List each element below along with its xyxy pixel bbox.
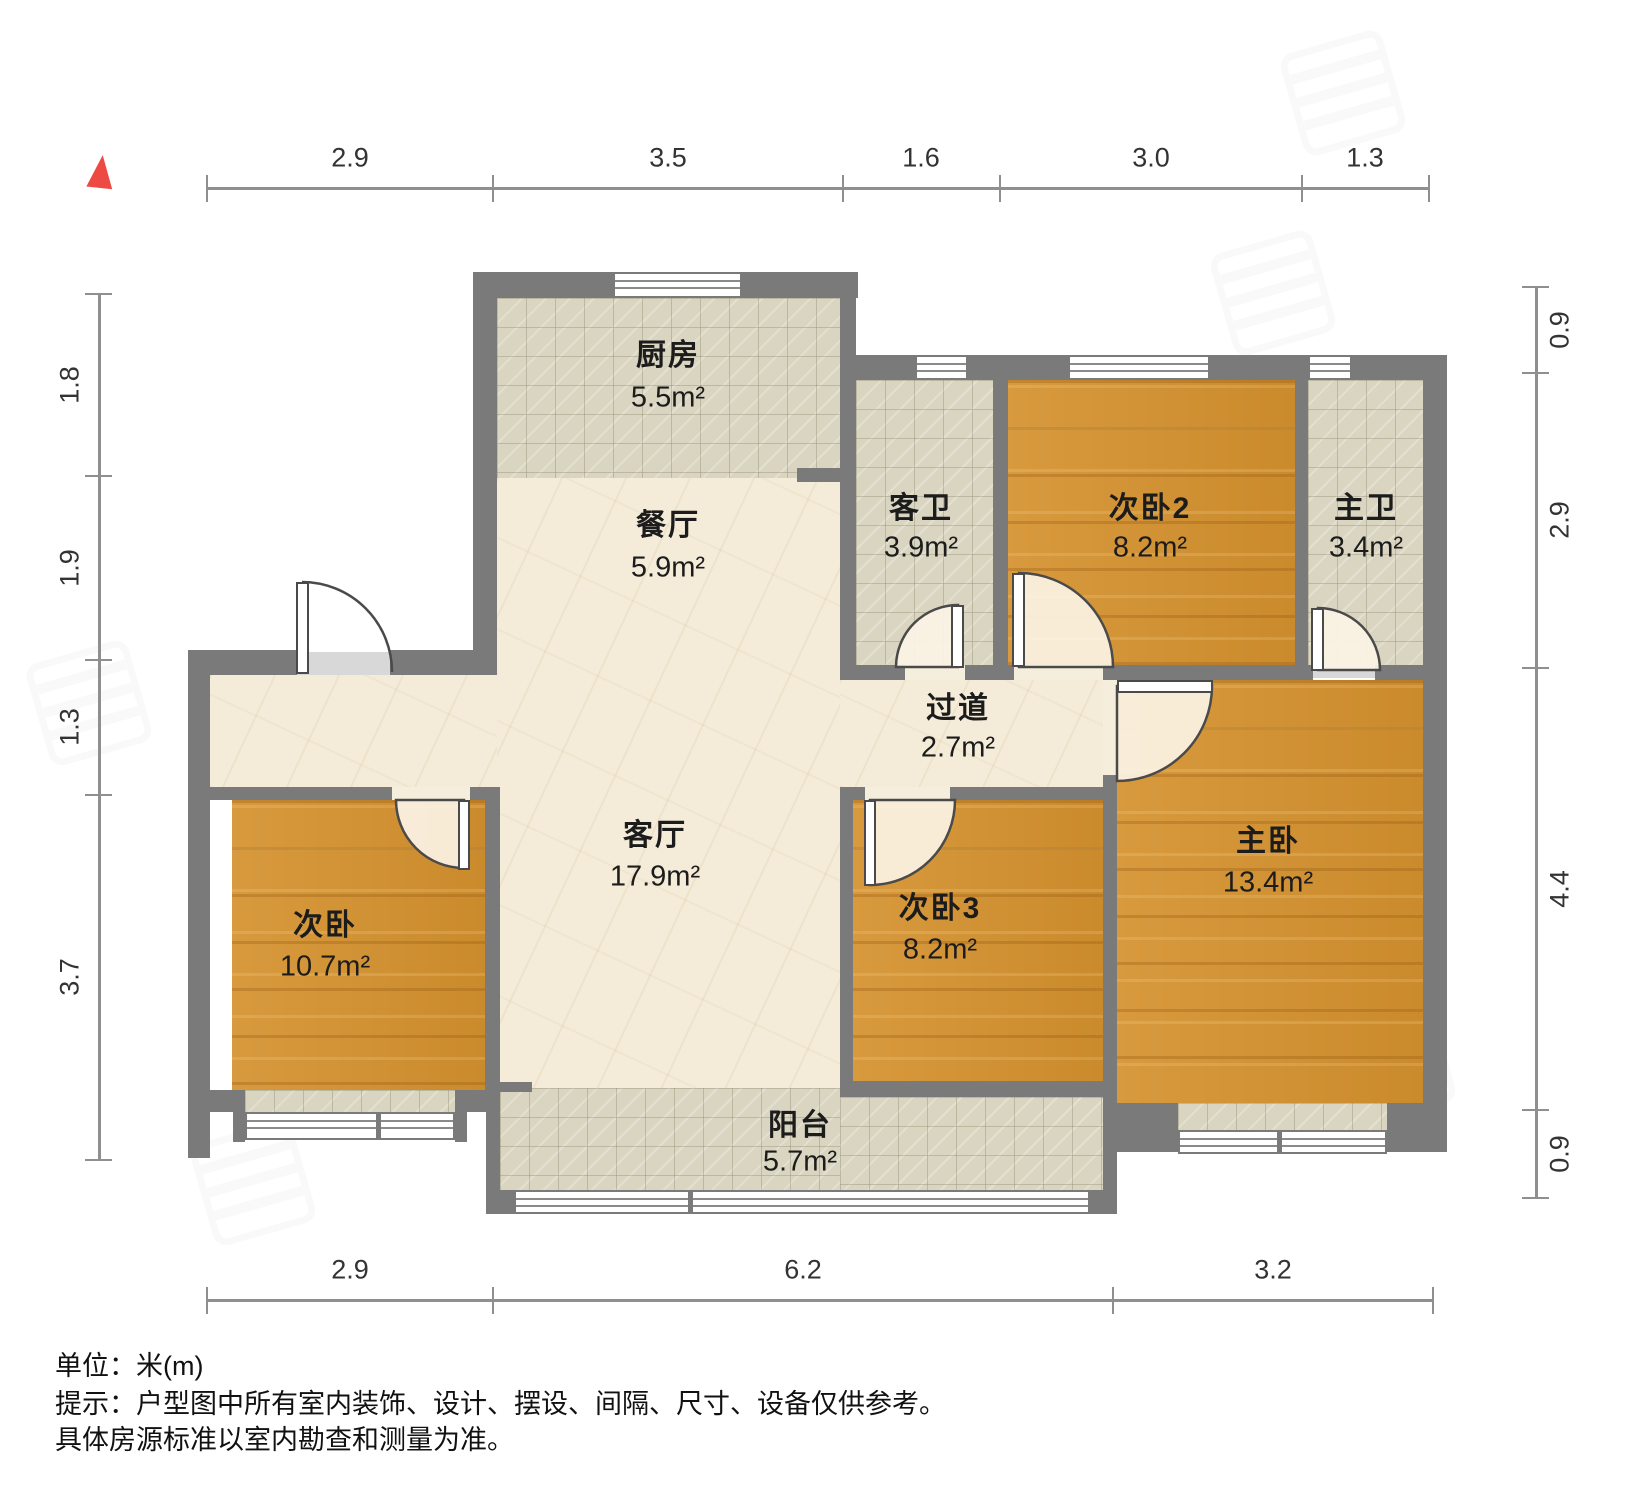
dim-line-bottom — [207, 1299, 1433, 1302]
dim-left-4: 3.7 — [55, 958, 86, 996]
guest-bath-area: 3.9m² — [884, 532, 958, 565]
window-divider — [1277, 1130, 1282, 1154]
bedroom3-area: 8.2m² — [903, 934, 977, 967]
master-bedroom-area: 13.4m² — [1223, 867, 1313, 900]
guest-bath-label: 客卫 — [889, 483, 953, 527]
dim-tick — [1522, 372, 1549, 374]
master-bath-door-arc — [1318, 608, 1380, 670]
dining-area: 5.9m² — [631, 552, 705, 585]
bedroom-bay-window — [245, 1112, 455, 1140]
floor-plan-canvas: 厨房 5.5m² 餐厅 5.9m² 客卫 3.9m² 次卧2 8.2m² 主卫 … — [0, 0, 1636, 1488]
master-bath-window — [1308, 355, 1352, 380]
living-label: 客厅 — [623, 810, 687, 854]
dim-tick — [1301, 175, 1303, 202]
balcony-window — [514, 1190, 1090, 1214]
entry-door-arc — [302, 582, 392, 672]
bedroom2-door-arc — [1019, 573, 1113, 667]
bedroom-door-leaf — [458, 800, 470, 870]
guest-bath-window — [915, 355, 968, 380]
dim-top-5: 1.3 — [1346, 143, 1384, 174]
dim-line-right — [1535, 287, 1538, 1198]
dim-tick — [842, 175, 844, 202]
dim-tick — [206, 175, 208, 202]
bedroom3-door-arc — [870, 800, 955, 885]
dim-tick — [1428, 175, 1430, 202]
balcony-area: 5.7m² — [763, 1146, 837, 1179]
dim-tick — [492, 1287, 494, 1314]
dim-top-3: 1.6 — [902, 143, 940, 174]
bedroom-door-arc — [396, 800, 464, 868]
dim-line-top — [207, 187, 1429, 190]
bedroom-label: 次卧 — [293, 900, 357, 944]
dim-left-3: 1.3 — [55, 708, 86, 746]
hallway-area: 2.7m² — [921, 732, 995, 765]
kitchen-label: 厨房 — [636, 330, 700, 374]
dim-tick — [1522, 667, 1549, 669]
dim-line-left — [98, 294, 101, 1160]
dim-left-1: 1.8 — [55, 366, 86, 404]
master-bay-window — [1178, 1130, 1387, 1154]
hallway-label: 过道 — [926, 683, 990, 727]
dim-tick — [1432, 1287, 1434, 1314]
dim-bottom-1: 2.9 — [331, 1255, 369, 1286]
bedroom2-door-leaf — [1012, 573, 1025, 667]
bedroom-area: 10.7m² — [280, 951, 370, 984]
dim-right-4: 0.9 — [1545, 1135, 1576, 1173]
dim-right-2: 2.9 — [1545, 501, 1576, 539]
dim-right-3: 4.4 — [1545, 870, 1576, 908]
dim-tick — [85, 293, 112, 295]
guest-bath-door-leaf — [951, 605, 964, 668]
dim-tick — [85, 475, 112, 477]
footer-notice-line1: 提示：户型图中所有室内装饰、设计、摆设、间隔、尺寸、设备仅供参考。 — [55, 1382, 946, 1421]
dim-tick — [85, 794, 112, 796]
bedroom2-area: 8.2m² — [1113, 532, 1187, 565]
master-bath-area: 3.4m² — [1329, 532, 1403, 565]
dim-tick — [85, 1159, 112, 1161]
dim-tick — [1522, 1109, 1549, 1111]
master-bath-door-leaf — [1311, 608, 1324, 671]
master-bedroom-door-arc — [1117, 686, 1212, 781]
bedroom3-door-leaf — [864, 800, 876, 886]
master-bedroom-label: 主卧 — [1236, 816, 1300, 860]
bedroom2-label: 次卧2 — [1109, 483, 1192, 527]
dim-right-1: 0.9 — [1545, 311, 1576, 349]
window-divider — [376, 1112, 381, 1140]
master-bath-label: 主卫 — [1334, 483, 1398, 527]
dim-tick — [85, 659, 112, 661]
window-divider — [688, 1190, 693, 1214]
dim-bottom-2: 6.2 — [784, 1255, 822, 1286]
guest-bath-door-arc — [896, 605, 958, 667]
bedroom3-label: 次卧3 — [899, 883, 982, 927]
dim-tick — [999, 175, 1001, 202]
master-bedroom-door-leaf — [1117, 680, 1213, 693]
dim-tick — [1112, 1287, 1114, 1314]
living-area: 17.9m² — [610, 861, 700, 894]
footer-notice-line2: 具体房源标准以室内勘查和测量为准。 — [55, 1418, 514, 1457]
dining-label: 餐厅 — [636, 500, 700, 544]
dim-tick — [206, 1287, 208, 1314]
dim-left-2: 1.9 — [55, 549, 86, 587]
footer-unit-note: 单位：米(m) — [55, 1344, 203, 1383]
dim-top-2: 3.5 — [649, 143, 687, 174]
dim-top-1: 2.9 — [331, 143, 369, 174]
kitchen-window — [613, 272, 742, 298]
dim-tick — [1522, 286, 1549, 288]
kitchen-area: 5.5m² — [631, 382, 705, 415]
dim-tick — [492, 175, 494, 202]
dim-top-4: 3.0 — [1132, 143, 1170, 174]
balcony-label: 阳台 — [768, 1100, 832, 1144]
dim-tick — [1522, 1197, 1549, 1199]
bedroom2-window — [1068, 355, 1210, 380]
dim-bottom-3: 3.2 — [1254, 1255, 1292, 1286]
entry-door-leaf — [296, 582, 309, 674]
